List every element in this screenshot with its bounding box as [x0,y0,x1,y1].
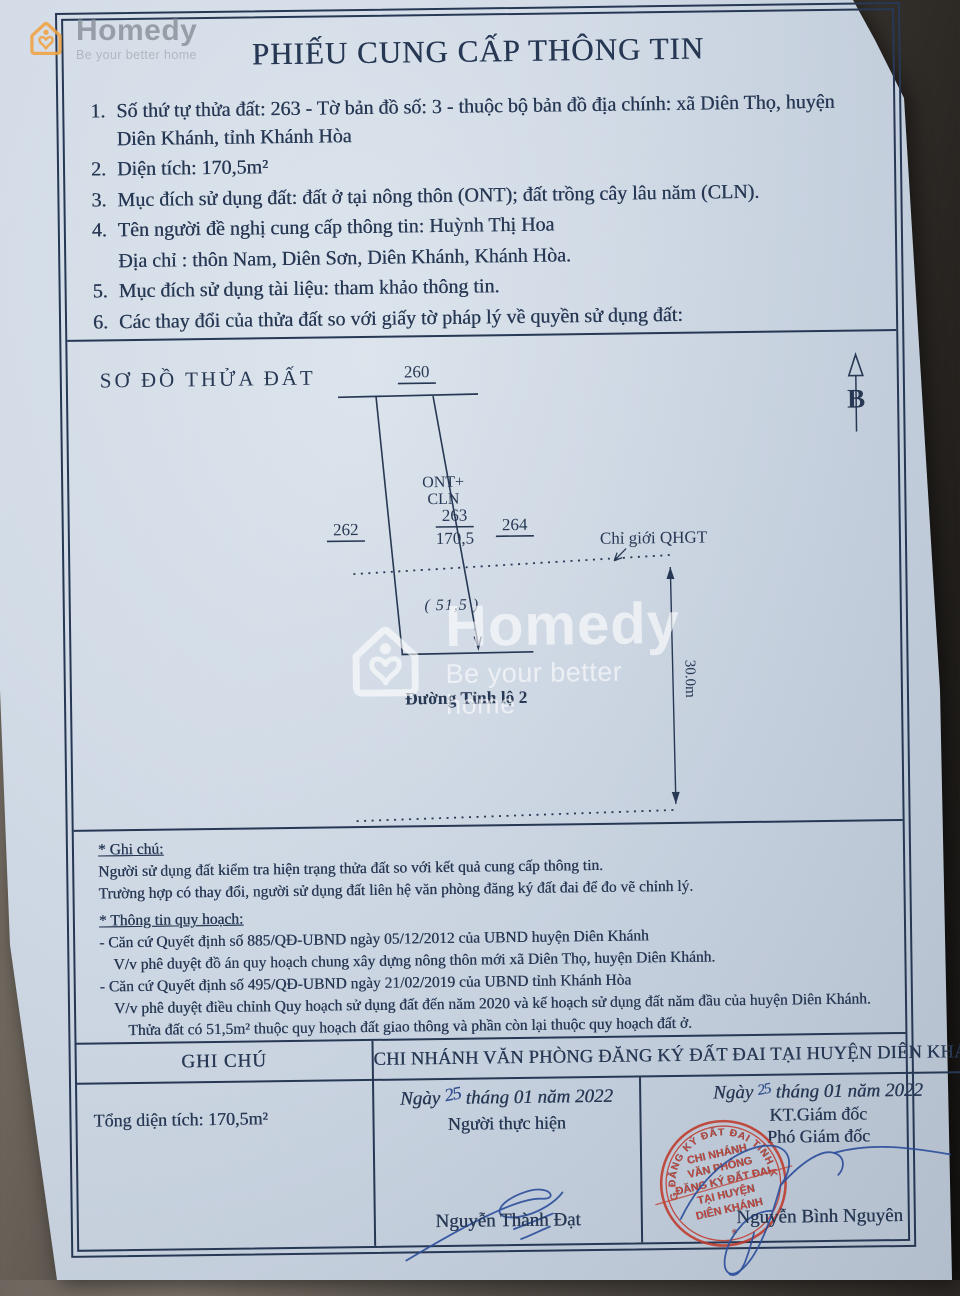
label-depth: 30.0m [682,660,698,698]
label-land-use-1: ONT+ [422,474,464,492]
label-parcel-260: 260 [404,362,430,381]
inner-border-frame: PHIẾU CUNG CẤP THÔNG TIN 1.Số thứ tự thử… [61,8,910,1252]
stamp-center-line: ĐĂNG KÝ ĐẤT ĐAI [674,1164,772,1198]
homedy-watermark-corner: Homedy Be your better home [24,16,197,62]
homedy-tagline-text: Be your better home [76,48,197,62]
label-parcel-263: 263 [442,506,468,525]
item-text: Các thay đổi của thửa đất so với giấy tờ… [119,303,683,332]
date-suffix: tháng 01 năm 2022 [776,1080,924,1103]
director-cell: Ngày 25 tháng 01 năm 2022 KT.Giám đốc Ph… [641,1073,960,1243]
label-qhgt: Chỉ giới QHGT [600,528,708,548]
item-number: 2. [91,156,117,184]
page-title: PHIẾU CUNG CẤP THÔNG TIN [252,31,705,72]
executor-role: Người thực hiện [448,1112,566,1135]
total-area-value: Tổng diện tích: 170,5m² [93,1108,268,1130]
label-road-name: Đường Tỉnh lộ 2 [405,687,528,709]
stamp-ring-text: VĂN PHÒNG ĐĂNG KÝ ĐẤT ĐAI TỈNH KHÁNH HÒA [656,1114,779,1201]
north-arrow-label: B [847,383,865,413]
homedy-logo-icon [24,16,68,60]
stamp-center-line: VĂN PHÒNG [686,1154,753,1181]
item-number: 5. [92,278,118,306]
date-prefix: Ngày [713,1082,753,1104]
svg-text:VĂN PHÒNG ĐĂNG KÝ ĐẤT ĐAI TỈNH: VĂN PHÒNG ĐĂNG KÝ ĐẤT ĐAI TỈNH KHÁNH HÒA [656,1114,779,1201]
executor-date: Ngày 25 tháng 01 năm 2022 [400,1086,613,1111]
plot-diagram: SƠ ĐỒ THỬA ĐẤT 260 ONT+ [67,331,902,830]
item-text: Mục đích sử dụng đất: đất ở tại nông thô… [117,180,759,210]
label-parcel-262: 262 [333,520,359,539]
homedy-brand-text: Homedy [76,16,197,46]
item-text: Số thứ tự thửa đất: 263 - Tờ bản đồ số: … [116,91,835,150]
date-suffix: tháng 01 năm 2022 [466,1086,614,1109]
stamp-center-line: TẠI HUYỆN [696,1182,756,1208]
planning-heading: * Thông tin quy hoạch: [99,911,244,930]
notes-section: * Ghi chú: Người sử dụng đất kiểm tra hi… [74,821,906,1043]
label-parcel-area: 170,5 [436,529,474,548]
notes-heading: * Ghi chú: [98,841,164,859]
item-parcel-number: 1.Số thứ tự thửa đất: 263 - Tờ bản đồ số… [90,88,876,153]
info-items-section: 1.Số thứ tự thửa đất: 263 - Tờ bản đồ số… [64,84,896,340]
item-text: Tên người đề nghị cung cấp thông tin: Hu… [118,213,555,241]
stamp-center-line: CHI NHÁNH [685,1141,747,1167]
executor-name: Nguyễn Thành Đạt [376,1208,641,1233]
director-name: Nguyễn Bình Nguyên [642,1204,960,1231]
item-number: 1. [90,98,116,126]
date-prefix: Ngày [400,1088,440,1110]
photo-background: Homedy Be your better home PHIẾU CUNG CẤ… [0,0,960,1280]
label-frontage: ( 51,5 ) [424,597,479,615]
item-number: 4. [92,217,118,245]
director-role-2: Phó Giám đốc [767,1125,870,1147]
item-text: Mục đích sử dụng tài liệu: tham khảo thô… [119,275,500,302]
handwritten-day: 25 [756,1081,772,1100]
handwritten-day: 25 [442,1083,462,1107]
item-number: 3. [91,187,117,215]
label-parcel-264: 264 [502,515,528,534]
item-text: Địa chỉ : thôn Nam, Diên Sơn, Diên Khánh… [118,244,571,272]
outer-border-frame: PHIẾU CUNG CẤP THÔNG TIN 1.Số thứ tự thử… [55,2,916,1258]
table-header-note: GHI CHÚ [77,1041,374,1085]
land-information-document: PHIẾU CUNG CẤP THÔNG TIN 1.Số thứ tự thử… [55,2,916,1258]
total-area-cell: Tổng diện tích: 170,5m² [77,1081,376,1250]
item-text: Diện tích: 170,5m² [117,156,268,180]
director-role-1: KT.Giám đốc [769,1103,867,1125]
executor-cell: Ngày 25 tháng 01 năm 2022 Người thực hiệ… [374,1077,643,1245]
plot-diagram-section: SƠ ĐỒ THỬA ĐẤT 260 ONT+ [67,329,902,832]
signature-table: GHI CHÚ CHI NHÁNH VĂN PHÒNG ĐĂNG KÝ ĐẤT … [76,1032,908,1250]
item-number: 6. [93,309,119,337]
diagram-heading: SƠ ĐỒ THỬA ĐẤT [100,366,316,393]
director-date: Ngày 25 tháng 01 năm 2022 [713,1080,923,1105]
